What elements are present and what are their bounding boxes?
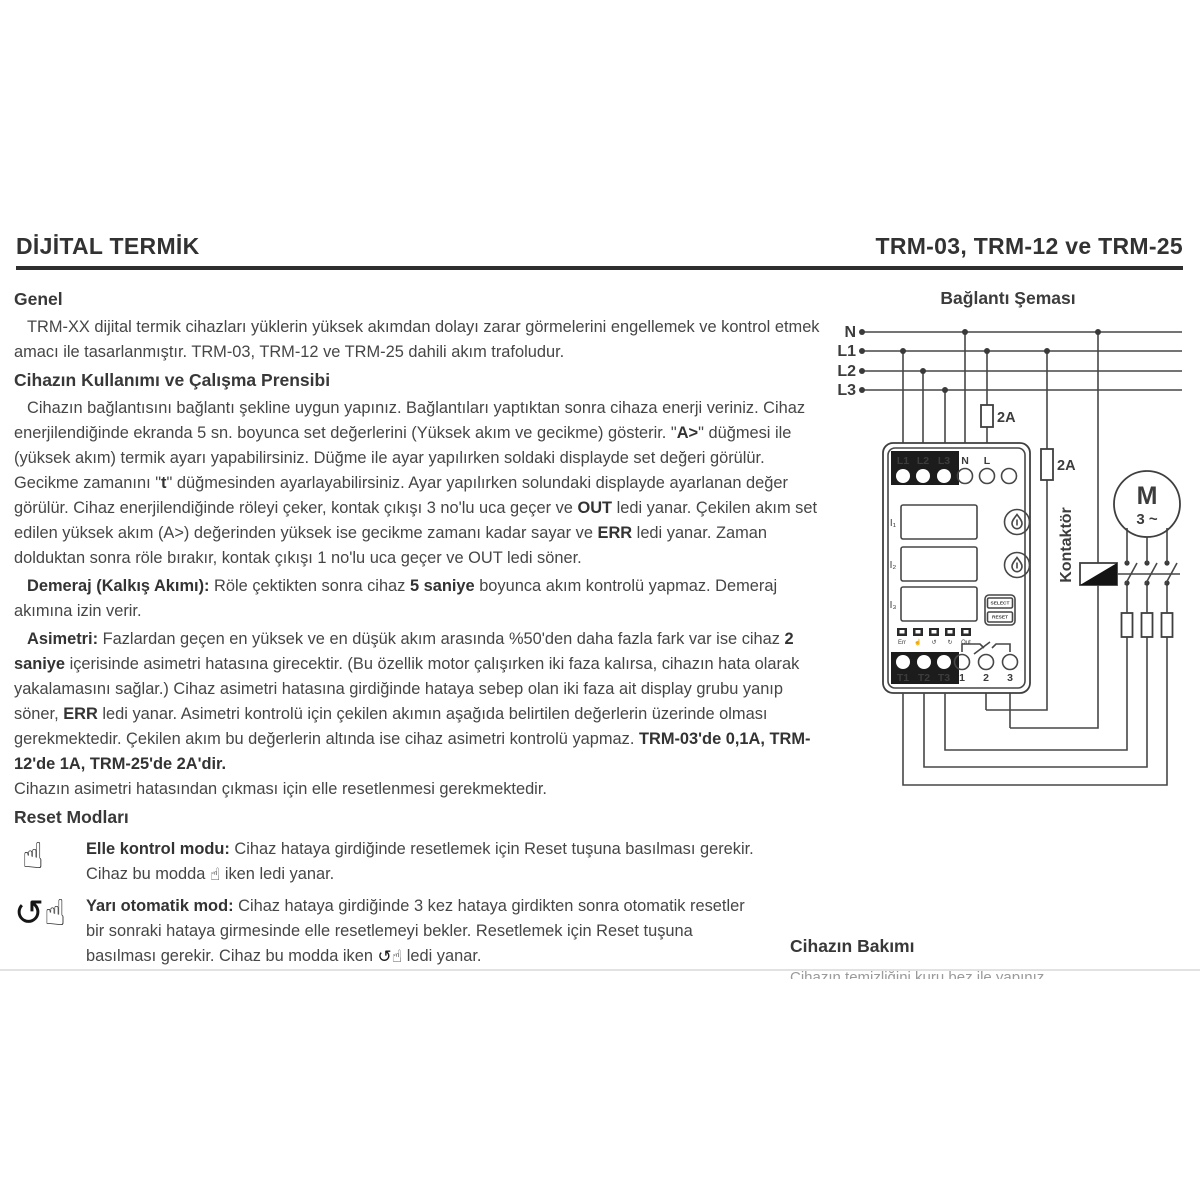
section-heading-maintenance: Cihazın Bakımı <box>790 936 1185 957</box>
reset-mode-manual: ☝ Elle kontrol modu: Cihaz hataya girdiğ… <box>14 837 820 887</box>
led-label-manual-hand-icon: ☝ <box>914 638 921 646</box>
terminal-label-l1: L1 <box>897 455 909 467</box>
manual-reset-icon: ☝ <box>210 865 220 885</box>
motor-fuses <box>1122 583 1173 637</box>
terminal-label-t1: T1 <box>897 672 909 684</box>
content-bottom-divider <box>0 969 1200 971</box>
motor-phase-label: 3 ~ <box>1136 511 1158 528</box>
paragraph-usage: Cihazın bağlantısını bağlantı şekline uy… <box>14 396 820 571</box>
diagram-title: Bağlantı Şeması <box>940 288 1075 308</box>
terminal-label-t2: T2 <box>918 672 930 684</box>
paragraph-asimetri-line2: Cihazın asimetri hatasından çıkması için… <box>14 777 820 802</box>
section-heading-usage: Cihazın Kullanımı ve Çalışma Prensibi <box>14 368 820 393</box>
display-i2 <box>901 547 977 581</box>
reset-mode-semi-auto: ↺☝ Yarı otomatik mod: Cihaz hataya girdi… <box>14 894 820 969</box>
led-label-err: Err <box>898 640 906 646</box>
display-label-i2: I₂ <box>890 560 897 571</box>
product-models-title: TRM-03, TRM-12 ve TRM-25 <box>875 233 1183 260</box>
bus-label-l1: L1 <box>837 343 856 360</box>
display-label-i1: I₁ <box>890 518 897 529</box>
manual-page: DİJİTAL TERMİK TRM-03, TRM-12 ve TRM-25 … <box>0 0 1200 1200</box>
contactor: Kontaktör <box>1058 507 1180 585</box>
terminal-label-3: 3 <box>1007 672 1013 684</box>
led-row: Err ☝ ↺ ↻ Out <box>897 628 971 646</box>
paragraph-demeraj: Demeraj (Kalkış Akımı): Röle çektikten s… <box>14 574 820 624</box>
maintenance-section: Cihazın Bakımı Cihazın temizliğini kuru … <box>790 936 1185 979</box>
header-rule <box>16 266 1183 270</box>
led-label-auto-icon: ↻ <box>947 639 952 646</box>
control-fuse-2: 2A <box>1041 449 1076 480</box>
bus-label-n: N <box>844 324 856 341</box>
device-illustration: L1 L2 L3 N L I₁ I₂ I₃ <box>883 443 1030 693</box>
bus-label-l2: L2 <box>837 363 856 380</box>
bus-label-l3: L3 <box>837 382 856 399</box>
section-heading-genel: Genel <box>14 287 820 312</box>
terminal-label-1: 1 <box>959 672 965 684</box>
terminal-label-2: 2 <box>983 672 989 684</box>
display-i3 <box>901 587 977 621</box>
body-text-column: Genel TRM-XX dijital termik cihazları yü… <box>14 287 820 969</box>
terminal-label-l2: L2 <box>917 455 929 467</box>
manual-reset-hand-icon: ☝ <box>22 836 44 877</box>
paragraph-genel: TRM-XX dijital termik cihazları yüklerin… <box>14 315 820 365</box>
reset-mode-manual-text: Elle kontrol modu: Cihaz hataya girdiğin… <box>86 837 758 887</box>
display-i1 <box>901 505 977 539</box>
relay-contact-symbol <box>962 642 1010 654</box>
led-label-semiauto-icon: ↺ <box>931 639 936 646</box>
page-title: DİJİTAL TERMİK <box>16 233 200 260</box>
motor-symbol: M 3 ~ <box>1114 471 1180 563</box>
control-fuse-1: 2A <box>981 405 1016 427</box>
terminal-label-l: L <box>984 455 991 467</box>
motor-label: M <box>1137 482 1158 510</box>
select-reset-button-group: SELECT RESET <box>985 595 1015 625</box>
fuse-2-label: 2A <box>1057 458 1076 474</box>
terminal-label-t3: T3 <box>938 672 950 684</box>
contactor-contacts <box>1124 560 1177 585</box>
section-heading-reset-modes: Reset Modları <box>14 805 820 830</box>
select-button-label: SELECT <box>991 601 1010 607</box>
wiring-diagram: Bağlantı Şeması N L1 L2 L3 2A <box>826 286 1200 806</box>
fuse-1-label: 2A <box>997 410 1016 426</box>
terminal-label-l3: L3 <box>938 455 950 467</box>
bus-lines <box>859 329 1182 393</box>
paragraph-asimetri: Asimetri: Fazlardan geçen en yüksek ve e… <box>14 627 820 777</box>
semi-auto-reset-icon: ↺☝ <box>378 947 403 967</box>
reset-button-label: RESET <box>992 615 1008 621</box>
semi-auto-reset-hand-icon: ↺☝ <box>14 893 66 934</box>
reset-mode-semi-auto-text: Yarı otomatik mod: Cihaz hataya girdiğin… <box>86 894 758 969</box>
display-label-i3: I₃ <box>890 600 897 611</box>
terminal-label-n: N <box>961 455 969 467</box>
contactor-label: Kontaktör <box>1058 507 1075 583</box>
